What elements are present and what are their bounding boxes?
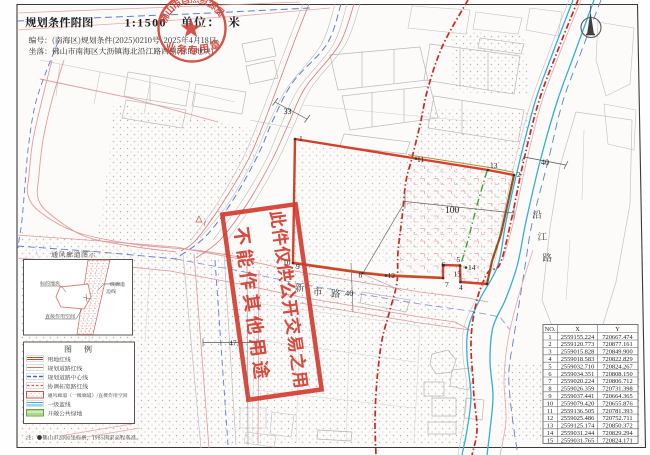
svg-text:2: 2 xyxy=(548,341,551,348)
svg-text:6: 6 xyxy=(442,260,446,269)
svg-text:720822.829: 720822.829 xyxy=(602,356,632,363)
svg-text:720731.398: 720731.398 xyxy=(602,386,632,393)
svg-text:2559020.224: 2559020.224 xyxy=(561,378,595,385)
svg-text:2559079.420: 2559079.420 xyxy=(561,400,595,407)
svg-text:5: 5 xyxy=(548,363,551,370)
svg-text:8: 8 xyxy=(359,271,363,280)
svg-text:10: 10 xyxy=(547,400,553,407)
svg-text:2559155.224: 2559155.224 xyxy=(561,334,595,341)
svg-text:9: 9 xyxy=(296,262,300,271)
svg-text:720824.267: 720824.267 xyxy=(602,363,633,370)
svg-text:1: 1 xyxy=(299,134,303,143)
svg-text:2559032.710: 2559032.710 xyxy=(561,363,595,370)
svg-text:2559120.773: 2559120.773 xyxy=(561,341,595,348)
svg-text:2559125.174: 2559125.174 xyxy=(561,423,595,430)
svg-text:2: 2 xyxy=(517,170,521,179)
svg-text:NO.: NO. xyxy=(545,326,556,333)
svg-text:720806.712: 720806.712 xyxy=(602,378,632,385)
svg-text:13: 13 xyxy=(547,423,553,430)
svg-text:2559025.486: 2559025.486 xyxy=(561,415,595,422)
svg-text:5: 5 xyxy=(457,255,461,264)
svg-text:720829.294: 720829.294 xyxy=(602,430,633,437)
svg-text:720877.161: 720877.161 xyxy=(602,341,632,348)
svg-text:9: 9 xyxy=(548,393,551,400)
svg-text:12: 12 xyxy=(388,271,396,280)
svg-text:11: 11 xyxy=(547,408,553,415)
svg-text:7: 7 xyxy=(445,280,449,289)
svg-text:720752.711: 720752.711 xyxy=(602,415,632,422)
svg-text:15: 15 xyxy=(547,437,553,444)
svg-text:720781.393: 720781.393 xyxy=(602,408,632,415)
svg-text:100: 100 xyxy=(445,206,460,216)
svg-text:720849.900: 720849.900 xyxy=(602,349,632,356)
svg-text:720850.372: 720850.372 xyxy=(602,423,632,430)
svg-text:2559031.244: 2559031.244 xyxy=(561,430,595,437)
svg-text:720664.365: 720664.365 xyxy=(602,393,632,400)
svg-text:2559037.441: 2559037.441 xyxy=(561,393,595,400)
svg-text:13: 13 xyxy=(490,161,498,170)
svg-text:40: 40 xyxy=(345,288,354,298)
svg-text:1: 1 xyxy=(548,334,551,341)
svg-text:15: 15 xyxy=(454,270,462,279)
svg-text:11: 11 xyxy=(417,155,424,164)
svg-text:720824.171: 720824.171 xyxy=(602,437,632,444)
svg-text:40: 40 xyxy=(541,158,549,167)
svg-text:2559136.505: 2559136.505 xyxy=(561,408,595,415)
svg-text:2559018.583: 2559018.583 xyxy=(561,356,595,363)
svg-text:14: 14 xyxy=(547,430,554,437)
svg-text:X: X xyxy=(575,326,580,333)
svg-text:12: 12 xyxy=(547,415,553,422)
svg-text:2559034.351: 2559034.351 xyxy=(561,371,595,378)
svg-text:33: 33 xyxy=(284,107,292,116)
svg-text:2559031.765: 2559031.765 xyxy=(561,437,595,444)
svg-text:Y: Y xyxy=(615,326,620,333)
svg-text:2559015.828: 2559015.828 xyxy=(561,349,595,356)
svg-text:2559026.359: 2559026.359 xyxy=(561,386,595,393)
svg-text:4: 4 xyxy=(459,283,463,292)
svg-text:720655.876: 720655.876 xyxy=(602,400,632,407)
svg-text:720667.474: 720667.474 xyxy=(602,334,633,341)
svg-text:720808.150: 720808.150 xyxy=(602,371,632,378)
svg-text:8: 8 xyxy=(548,386,551,393)
svg-text:6: 6 xyxy=(548,371,551,378)
svg-text:14: 14 xyxy=(468,263,476,272)
svg-text:3: 3 xyxy=(548,349,551,356)
